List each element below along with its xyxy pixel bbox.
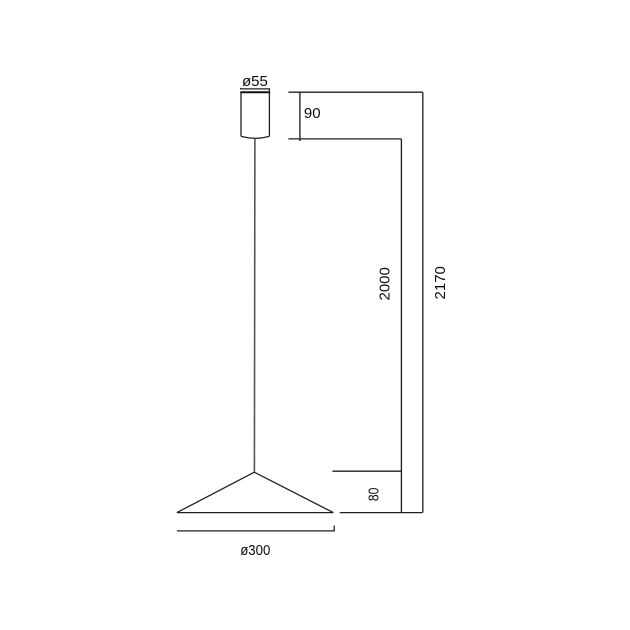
svg-text:2000: 2000	[377, 267, 394, 300]
svg-text:ø300: ø300	[240, 542, 270, 559]
svg-text:ø55: ø55	[242, 73, 268, 90]
svg-text:80: 80	[366, 488, 383, 502]
svg-text:90: 90	[304, 105, 321, 122]
svg-text:2170: 2170	[432, 266, 449, 299]
